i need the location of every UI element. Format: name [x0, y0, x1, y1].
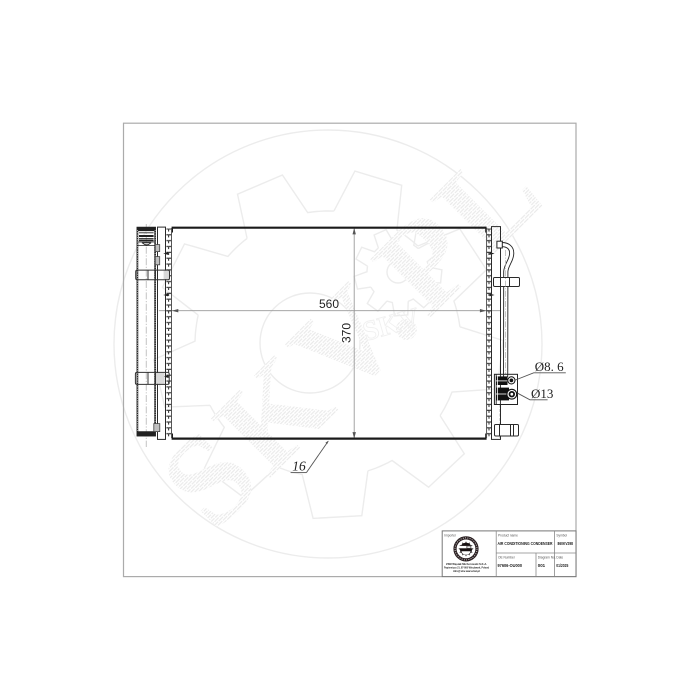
svg-text:Symbol: Symbol: [556, 533, 567, 537]
svg-text:860KV298: 860KV298: [558, 541, 574, 546]
svg-text:370: 370: [340, 323, 354, 343]
svg-text:001: 001: [538, 563, 546, 568]
svg-text:01/2025: 01/2025: [556, 563, 568, 568]
svg-text:Importer: Importer: [444, 533, 457, 537]
svg-text:Ø8. 6: Ø8. 6: [535, 359, 564, 374]
svg-text:Ø13: Ø13: [531, 386, 553, 401]
svg-text:info@skv.warsztat.pl: info@skv.warsztat.pl: [453, 569, 480, 573]
svg-text:Diagram No.: Diagram No.: [538, 556, 556, 560]
svg-text:Date: Date: [556, 556, 563, 560]
svg-text:AIR CONDITIONING CONDENSER: AIR CONDITIONING CONDENSER: [498, 541, 554, 546]
svg-text:97606-OU000: 97606-OU000: [498, 563, 523, 568]
svg-text:16: 16: [292, 458, 306, 473]
svg-text:Product name: Product name: [498, 533, 518, 537]
svg-text:560: 560: [319, 297, 339, 311]
svg-text:OE Number: OE Number: [498, 556, 516, 560]
